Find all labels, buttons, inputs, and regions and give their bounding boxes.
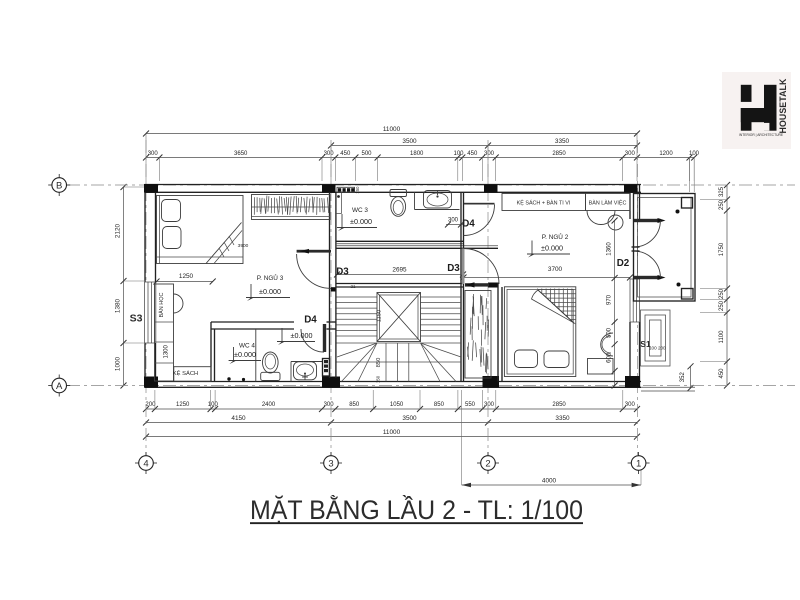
svg-text:±0.000: ±0.000 xyxy=(541,244,563,253)
svg-text:±0.000: ±0.000 xyxy=(350,217,372,226)
svg-text:970: 970 xyxy=(607,294,613,305)
svg-text:3500: 3500 xyxy=(402,415,417,422)
svg-text:300: 300 xyxy=(148,151,159,157)
svg-text:1750: 1750 xyxy=(719,242,725,256)
svg-text:1250: 1250 xyxy=(176,402,190,408)
svg-text:4000: 4000 xyxy=(542,477,557,484)
svg-text:352: 352 xyxy=(680,372,686,383)
svg-text:300: 300 xyxy=(324,402,335,408)
svg-text:550: 550 xyxy=(465,402,476,408)
svg-text:1360: 1360 xyxy=(607,242,613,256)
svg-text:850: 850 xyxy=(349,402,360,408)
svg-text:WC 3: WC 3 xyxy=(352,207,368,214)
svg-text:1380: 1380 xyxy=(115,298,122,313)
svg-text:S3: S3 xyxy=(130,313,143,325)
svg-text:KỆ SÁCH: KỆ SÁCH xyxy=(173,369,198,377)
svg-text:450: 450 xyxy=(467,151,478,157)
svg-text:INTERIOR | ARCHITECTURE: INTERIOR | ARCHITECTURE xyxy=(739,133,784,137)
svg-text:P. NGỦ 2: P. NGỦ 2 xyxy=(542,232,569,241)
svg-text:1: 1 xyxy=(636,458,641,469)
svg-text:100 200: 100 200 xyxy=(649,346,666,351)
svg-text:BÀN HỌC: BÀN HỌC xyxy=(158,292,165,317)
svg-text:D2: D2 xyxy=(617,258,630,269)
svg-text:HOUSETALK: HOUSETALK xyxy=(778,78,788,134)
svg-text:B: B xyxy=(56,180,62,191)
svg-text:3350: 3350 xyxy=(555,138,570,145)
svg-text:1800: 1800 xyxy=(410,151,424,157)
svg-text:MẶT BẰNG LẦU 2 - TL: 1/100: MẶT BẰNG LẦU 2 - TL: 1/100 xyxy=(250,495,583,525)
svg-text:1300: 1300 xyxy=(164,344,170,358)
svg-text:250: 250 xyxy=(719,199,725,210)
svg-text:300: 300 xyxy=(324,151,335,157)
svg-text:300: 300 xyxy=(484,151,495,157)
svg-text:4: 4 xyxy=(143,458,148,469)
svg-text:3900: 3900 xyxy=(238,243,249,249)
svg-text:250: 250 xyxy=(719,288,725,299)
svg-text:D3: D3 xyxy=(336,267,349,278)
svg-text:D3: D3 xyxy=(447,263,460,274)
svg-text:150: 150 xyxy=(376,375,381,383)
svg-text:P. NGỦ 3: P. NGỦ 3 xyxy=(257,273,284,282)
svg-text:2: 2 xyxy=(485,458,490,469)
svg-text:1150: 1150 xyxy=(377,310,383,322)
svg-text:BÀN LÀM VIỆC: BÀN LÀM VIỆC xyxy=(589,199,627,207)
svg-text:11000: 11000 xyxy=(383,126,401,133)
svg-text:2695: 2695 xyxy=(392,267,407,274)
svg-text:3700: 3700 xyxy=(548,266,563,273)
svg-text:3650: 3650 xyxy=(234,151,248,157)
svg-text:100: 100 xyxy=(453,151,464,157)
svg-text:A: A xyxy=(56,381,63,392)
svg-text:250: 250 xyxy=(355,186,360,194)
svg-text:300: 300 xyxy=(484,402,495,408)
svg-text:1200: 1200 xyxy=(659,151,673,157)
svg-text:250: 250 xyxy=(719,300,725,311)
svg-text:300: 300 xyxy=(625,151,636,157)
svg-text:850: 850 xyxy=(434,402,445,408)
svg-text:850: 850 xyxy=(376,358,382,368)
svg-text:300: 300 xyxy=(625,402,636,408)
svg-text:2400: 2400 xyxy=(262,402,276,408)
svg-text:2850: 2850 xyxy=(552,151,566,157)
svg-text:2120: 2120 xyxy=(115,223,122,238)
svg-text:D4: D4 xyxy=(462,219,475,230)
svg-text:4150: 4150 xyxy=(231,415,246,422)
svg-text:450: 450 xyxy=(719,368,725,379)
svg-text:1250: 1250 xyxy=(179,273,194,280)
svg-text:1050: 1050 xyxy=(390,402,404,408)
svg-text:500: 500 xyxy=(361,151,372,157)
svg-text:3350: 3350 xyxy=(555,415,570,422)
svg-text:100: 100 xyxy=(208,402,219,408)
svg-text:325: 325 xyxy=(719,186,725,197)
svg-text:3: 3 xyxy=(328,458,333,469)
svg-text:3500: 3500 xyxy=(402,138,417,145)
svg-text:D4: D4 xyxy=(304,315,317,326)
svg-text:1000: 1000 xyxy=(115,356,122,371)
svg-text:100: 100 xyxy=(689,151,700,157)
svg-text:±0.000: ±0.000 xyxy=(234,350,256,359)
svg-text:21: 21 xyxy=(350,284,356,289)
svg-text:2850: 2850 xyxy=(552,402,566,408)
svg-text:200: 200 xyxy=(145,402,156,408)
svg-text:1100: 1100 xyxy=(719,330,725,344)
svg-text:11000: 11000 xyxy=(383,429,401,436)
svg-text:600: 600 xyxy=(607,352,613,363)
svg-text:450: 450 xyxy=(340,151,351,157)
svg-text:WC 4: WC 4 xyxy=(239,343,255,350)
svg-text:±0.000: ±0.000 xyxy=(259,287,281,296)
svg-text:KỆ SÁCH + BÀN TI VI: KỆ SÁCH + BÀN TI VI xyxy=(517,199,571,207)
